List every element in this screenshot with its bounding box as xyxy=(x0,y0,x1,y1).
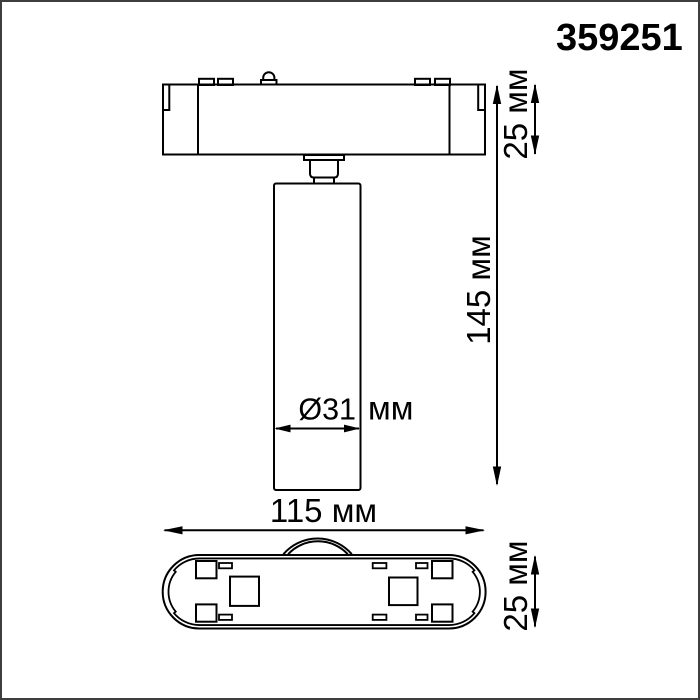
svg-text:25 мм: 25 мм xyxy=(497,540,534,631)
svg-text:115 мм: 115 мм xyxy=(270,492,377,529)
svg-text:25 мм: 25 мм xyxy=(497,68,534,159)
svg-text:Ø31: Ø31 xyxy=(298,393,356,427)
svg-text:145 мм: 145 мм xyxy=(460,235,497,345)
svg-text:359251: 359251 xyxy=(556,17,683,59)
svg-text:мм: мм xyxy=(368,390,413,427)
